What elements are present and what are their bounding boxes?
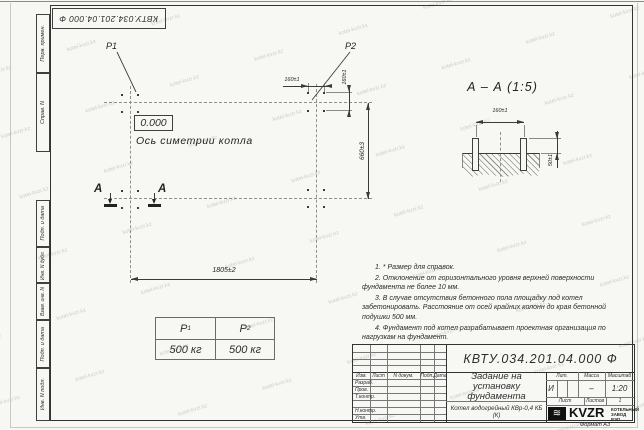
- scale-value: 1:20: [605, 380, 634, 397]
- load-table-header-p1: P1: [156, 318, 215, 339]
- dim-text-section-spacing: 160±1: [485, 108, 515, 114]
- note-4: 4. Фундамент под котел разрабатывает про…: [362, 324, 632, 343]
- role-razrab: Разраб.: [355, 380, 373, 386]
- sheet-label: Лист: [546, 397, 584, 405]
- col-data: Дата: [434, 372, 446, 379]
- note-3: 3. В случае отсутствия бетонного пола пл…: [362, 294, 632, 323]
- lit-label: Лит.: [546, 372, 578, 380]
- sheets-label: Листов: [584, 397, 606, 405]
- title-block-line: [387, 345, 388, 422]
- mass-label: Масса: [578, 372, 605, 380]
- ext-line: [308, 83, 309, 92]
- section-bolt-right: [520, 138, 527, 171]
- col-list: Лист: [370, 372, 387, 379]
- load-value-p1: 500 кг: [156, 340, 215, 359]
- section-letter-right: А: [158, 183, 166, 195]
- ext-line: [524, 125, 525, 137]
- title-block-line: [353, 365, 446, 366]
- note-1: 1. * Размер для справок.: [362, 263, 632, 273]
- scale-label: Масштаб: [605, 372, 634, 380]
- title-block-line: [353, 359, 446, 360]
- dim-line-660: [368, 103, 369, 199]
- dim-arrow: [325, 84, 332, 88]
- elevation-value: 0.000: [140, 117, 166, 129]
- dim-arrow: [476, 120, 483, 124]
- dim-arrow: [347, 110, 351, 117]
- concrete-edge: [539, 153, 540, 168]
- symmetry-axis-label: Ось симетрии котла: [136, 135, 253, 147]
- load-table-header-p2: P2: [216, 318, 274, 339]
- dim-arrow: [310, 277, 317, 281]
- role-utv: Утв.: [355, 415, 366, 421]
- dim-line-1805: [131, 279, 317, 280]
- drawing-sheet: kotel-kvzr.kzkotel-kvzr.kzkotel-kvzr.kzk…: [0, 0, 644, 430]
- role-tkontr: Т.контр.: [355, 394, 375, 400]
- title-block-document-name: Задание на установку фундамента: [447, 372, 546, 401]
- dim-arrow: [131, 277, 138, 281]
- title-block-line: [353, 352, 446, 353]
- title-block-line: [434, 345, 435, 422]
- role-nkontr: Н.контр.: [355, 408, 376, 414]
- dim-arrow: [301, 84, 308, 88]
- p-sub: 2: [247, 325, 251, 332]
- dim-text-bolt-y: 160±1: [340, 61, 350, 93]
- mass-value: –: [578, 380, 605, 397]
- dim-text-overall-width: 1805±2: [198, 267, 250, 274]
- format-note: Формат А3: [565, 422, 625, 428]
- kvzr-emblem-icon: ≋: [548, 407, 566, 420]
- dim-text-bolt-x: 160±1: [279, 77, 305, 83]
- title-block-line: [353, 414, 446, 415]
- kvzr-company-name: КОТЕЛЬНЫЙ ЗАВОД РЭП: [611, 407, 634, 422]
- p-label: P: [239, 323, 246, 335]
- section-view-title: А – А (1:5): [445, 80, 560, 94]
- load-table: P1 P2 500 кг 500 кг: [155, 317, 275, 360]
- notes-block: 1. * Размер для справок. 2. Отклонение о…: [362, 263, 632, 344]
- title-block-line: [557, 380, 558, 397]
- concrete-edge: [462, 153, 463, 168]
- load-value-p2: 500 кг: [216, 340, 274, 359]
- section-cut-stroke: [148, 204, 161, 207]
- title-block-line: [567, 380, 568, 397]
- bolt-label-p1: P1: [106, 41, 117, 51]
- p-sub: 1: [187, 325, 191, 332]
- kvzr-logo-text: KVZR: [569, 405, 615, 420]
- lit-value: И: [546, 380, 556, 397]
- col-izm: Изм.: [353, 372, 370, 379]
- dim-arrow: [517, 120, 524, 124]
- sheets-value: 1: [606, 397, 634, 405]
- note-2: 2. Отклонение от горизонтального уровня …: [362, 274, 632, 293]
- title-block-product-name: Котел водогрейный КВр-0,4 КБ (К): [447, 402, 546, 421]
- dim-text-overall-depth: 660±3: [356, 131, 368, 171]
- section-bolt-left: [472, 138, 479, 171]
- title-block: КВТУ.034.201.04.000 Ф Изм. Лист N докум.…: [352, 344, 635, 423]
- role-prov: Пров.: [355, 387, 368, 393]
- title-block-line: [420, 345, 421, 422]
- company-line: ЗАВОД РЭП: [611, 412, 634, 422]
- bolt-label-p2: P2: [345, 41, 356, 51]
- ext-line: [476, 125, 477, 137]
- dim-text-protrusion: 50±1: [546, 147, 556, 173]
- p-label: P: [180, 323, 187, 335]
- section-cut-stroke: [104, 204, 117, 207]
- dim-arrow: [366, 192, 370, 199]
- dim-arrow: [366, 103, 370, 110]
- section-letter-left: А: [94, 183, 102, 195]
- col-podp: Подп.: [420, 372, 434, 379]
- dim-arrow: [555, 132, 559, 139]
- col-ndokum: N докум.: [387, 372, 420, 379]
- elevation-mark: 0.000: [134, 115, 173, 131]
- title-block-line: [353, 400, 446, 401]
- title-block-designation: КВТУ.034.201.04.000 Ф: [447, 345, 634, 372]
